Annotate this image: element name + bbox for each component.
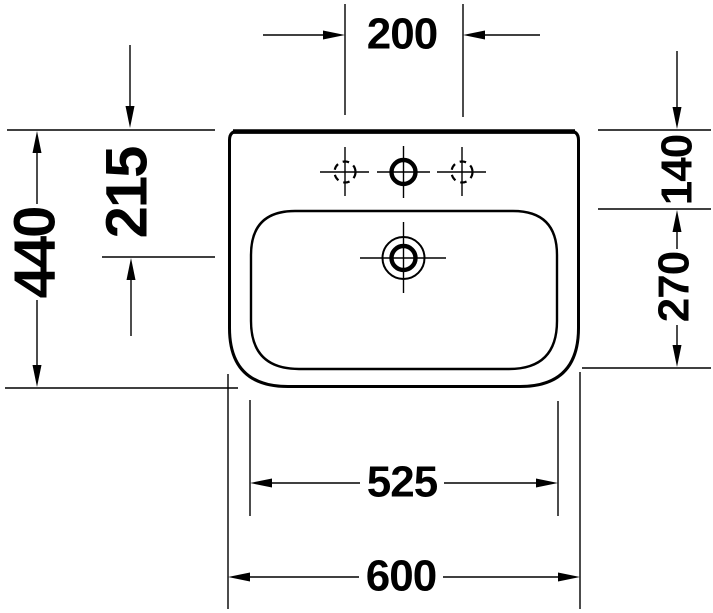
dim-label-overall-depth: 440: [3, 208, 68, 299]
arrowhead-up: [127, 258, 136, 280]
technical-drawing-canvas: 200 215 440 140: [0, 0, 713, 613]
dim-overall-depth: 440: [3, 131, 68, 387]
dim-back-to-overflow: 215: [95, 45, 160, 336]
dim-overall-width: 600: [228, 552, 580, 601]
tap-hole-left-optional: [320, 147, 369, 196]
arrowhead-down: [673, 345, 682, 367]
arrowhead-right: [323, 31, 345, 40]
dim-label-back-to-overflow: 215: [95, 147, 160, 239]
arrowhead-right: [536, 479, 558, 488]
arrowhead-down: [126, 106, 135, 128]
overflow-hole: [360, 222, 446, 293]
arrowhead-right: [558, 573, 580, 582]
dim-tap-hole-spacing: 200: [263, 10, 540, 59]
dim-label-basin-depth: 270: [650, 252, 699, 322]
arrowhead-down: [673, 107, 682, 129]
washbasin-drawing: 200 215 440 140: [0, 0, 713, 613]
arrowhead-left: [463, 31, 485, 40]
extension-lines: [5, 4, 711, 609]
dim-basin-width: 525: [250, 458, 558, 507]
arrowhead-up: [33, 131, 42, 153]
dim-label-back-to-basin: 140: [653, 135, 702, 205]
dim-back-to-basin: 140: [653, 51, 702, 205]
tap-hole-right-optional: [437, 147, 486, 196]
arrowhead-up: [673, 210, 682, 232]
arrowhead-down: [33, 365, 42, 387]
dim-label-basin-width: 525: [367, 458, 438, 507]
dim-label-overall-width: 600: [366, 552, 436, 601]
tap-hole-center: [377, 146, 430, 198]
dim-label-tap-spacing: 200: [367, 10, 437, 59]
arrowhead-left: [228, 573, 250, 582]
arrowhead-left: [250, 479, 272, 488]
dim-basin-depth: 270: [650, 210, 699, 367]
